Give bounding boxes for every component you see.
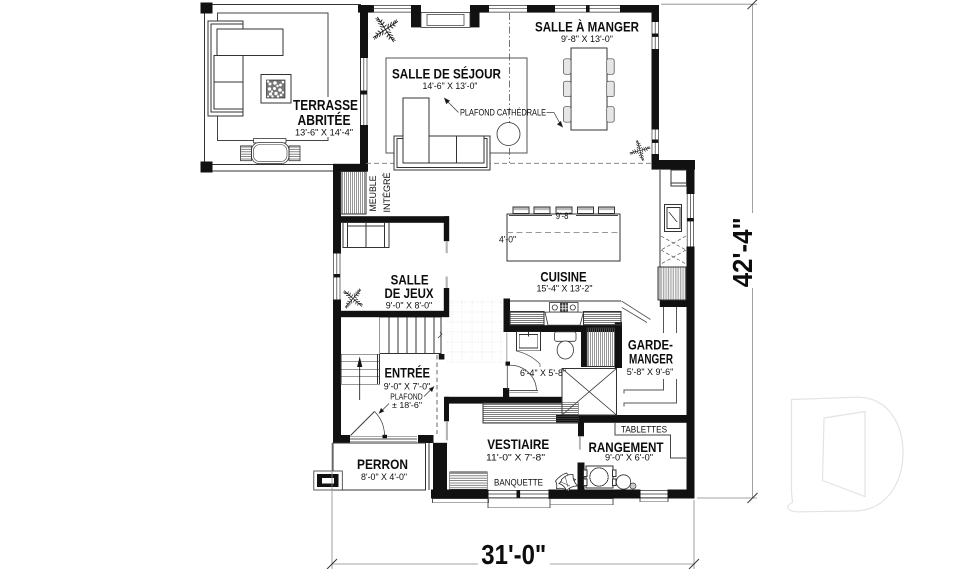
svg-text:15'-4" X 13'-2": 15'-4" X 13'-2": [537, 283, 593, 293]
svg-text:4'-0": 4'-0": [499, 235, 516, 245]
svg-text:INTÉGRÉ: INTÉGRÉ: [382, 173, 392, 213]
svg-text:6'-4" X 5'-8": 6'-4" X 5'-8": [520, 368, 566, 378]
svg-text:9'-0" X 8'-0": 9'-0" X 8'-0": [386, 301, 432, 311]
svg-text:14'-6" X 13'-0": 14'-6" X 13'-0": [423, 81, 478, 91]
svg-text:9'-0" X 7'-0": 9'-0" X 7'-0": [384, 382, 430, 392]
svg-text:ENTRÉE: ENTRÉE: [385, 364, 431, 380]
svg-text:PLAFOND CATHÉDRALE: PLAFOND CATHÉDRALE: [460, 107, 546, 118]
svg-text:PERRON: PERRON: [357, 456, 408, 472]
svg-text:DE JEUX: DE JEUX: [385, 285, 435, 301]
svg-text:MANGER: MANGER: [629, 351, 673, 367]
svg-text:9'-8" X 13'-0": 9'-8" X 13'-0": [561, 34, 613, 44]
svg-text:5'-8" X 9'-6": 5'-8" X 9'-6": [627, 367, 674, 377]
svg-text:VESTIAIRE: VESTIAIRE: [487, 436, 549, 452]
svg-text:31'-0": 31'-0": [481, 539, 546, 569]
svg-text:MEUBLE: MEUBLE: [368, 176, 378, 212]
svg-text:ABRITÉE: ABRITÉE: [298, 112, 351, 129]
svg-text:± 18'-6": ± 18'-6": [392, 401, 422, 410]
svg-text:TABLETTES: TABLETTES: [621, 425, 667, 435]
svg-text:SALLE À MANGER: SALLE À MANGER: [535, 19, 639, 35]
svg-text:BANQUETTE: BANQUETTE: [494, 478, 543, 488]
svg-text:CUISINE: CUISINE: [540, 269, 586, 285]
svg-text:42'-4": 42'-4": [727, 217, 758, 287]
svg-text:SALLE DE SÉJOUR: SALLE DE SÉJOUR: [392, 66, 501, 82]
svg-text:9'-8": 9'-8": [556, 211, 572, 221]
svg-text:9'-0" X 6'-0": 9'-0" X 6'-0": [605, 453, 653, 463]
svg-text:8'-0" X 4'-0": 8'-0" X 4'-0": [361, 472, 407, 482]
svg-text:11'-0" X 7'-8": 11'-0" X 7'-8": [486, 453, 545, 463]
svg-text:13'-6" X 14'-4": 13'-6" X 14'-4": [295, 128, 353, 138]
